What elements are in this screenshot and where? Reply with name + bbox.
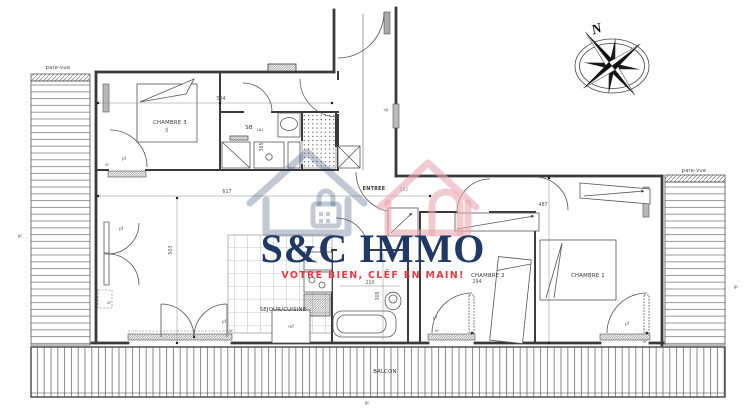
tag-vr-sejour: vr bbox=[107, 300, 111, 305]
tag-pf-sejour-side: pf bbox=[119, 226, 124, 231]
duct-bump bbox=[268, 64, 296, 72]
room-label-chambre2: CHAMBRE 2 bbox=[471, 273, 505, 279]
tag-gc-bottom: gc bbox=[365, 400, 370, 405]
floor-plan-drawing: S&C IMMO VOTRE BIEN, CLÉF EN MAIN! N par… bbox=[0, 0, 750, 420]
compass-north-label: N bbox=[589, 21, 605, 39]
tag-cu-cooktop: cu bbox=[313, 259, 318, 264]
tag-pf-sejour-balcony: pf bbox=[222, 319, 227, 324]
floor-plan-page: S&C IMMO VOTRE BIEN, CLÉF EN MAIN! N par… bbox=[0, 0, 750, 420]
tag-vr-sejour-balcony: vr bbox=[229, 328, 233, 333]
tag-ref-fridge: ref bbox=[288, 324, 294, 329]
room-label-sejour: SEJOUR/CUISINE bbox=[260, 307, 307, 313]
tag-gc-left: gc bbox=[18, 233, 23, 238]
tag-pf-chambre1: pf bbox=[625, 321, 630, 326]
bed-chambre2 bbox=[490, 257, 532, 344]
tag-pf-chambre3: pf bbox=[122, 156, 127, 161]
right-terrace bbox=[665, 175, 725, 345]
dim-365: 365 bbox=[259, 142, 265, 151]
watermark: S&C IMMO VOTRE BIEN, CLÉF EN MAIN! bbox=[250, 152, 485, 281]
room-label-sb: SB bbox=[245, 125, 253, 131]
tag-gc-right: gc bbox=[734, 284, 739, 289]
dim-210: 210 bbox=[365, 280, 374, 286]
tag-vr-chambre1: vr bbox=[643, 339, 647, 344]
room-label-entree: ENTREE bbox=[363, 186, 386, 192]
dim-294: 294 bbox=[472, 279, 481, 285]
tag-vp-corridor: vp bbox=[383, 107, 388, 112]
dim-617: 617 bbox=[222, 189, 231, 195]
dim-142: 142 bbox=[400, 187, 409, 193]
compass-rose-icon: N bbox=[557, 10, 663, 117]
pare-vue-right-label: pare-vue bbox=[682, 168, 707, 174]
tag-pf-chambre2: pf bbox=[433, 315, 438, 320]
room-label-balcon: BALCON bbox=[373, 369, 397, 375]
room-label-sb-num: 162 bbox=[256, 127, 264, 132]
dim-487: 487 bbox=[538, 202, 547, 208]
pare-vue-left-label: pare-vue bbox=[46, 65, 71, 71]
tag-vr-chambre3: vr bbox=[105, 162, 109, 167]
dim-503: 503 bbox=[168, 245, 174, 254]
left-terrace bbox=[31, 74, 90, 345]
room-label-chambre3: CHAMBRE 3 bbox=[153, 120, 187, 126]
dim-305: 305 bbox=[375, 291, 381, 300]
brand-wordmark: S&C IMMO bbox=[261, 226, 486, 271]
room-label-chambre1: CHAMBRE 1 bbox=[571, 273, 605, 279]
brand-tagline: VOTRE BIEN, CLÉF EN MAIN! bbox=[281, 269, 464, 281]
tag-vr-chambre2: vr bbox=[435, 328, 439, 333]
dim-584: 584 bbox=[216, 96, 225, 102]
bed-chambre1 bbox=[540, 240, 616, 300]
dim-26: 26 bbox=[164, 127, 169, 132]
